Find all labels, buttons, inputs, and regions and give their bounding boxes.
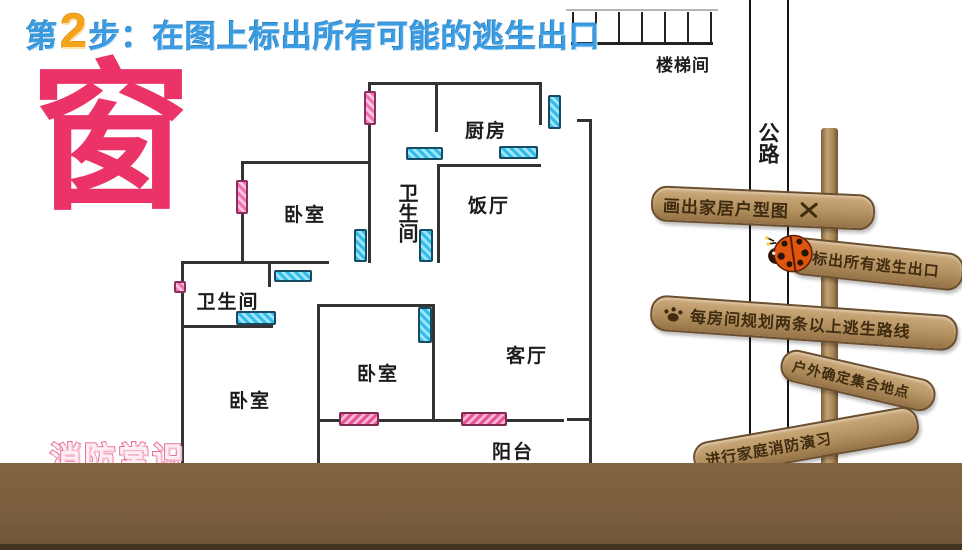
sign-step4-meeting-point: 户外确定集合地点 [777,347,938,415]
road-line-left [749,0,751,463]
sign-step1-draw-floorplan: 画出家居户型图 [650,185,875,231]
window-kitchen-mid [499,146,538,159]
sign-step3-label: 每房间规划两条以上逃生路线 [689,303,911,342]
signpost-pole [821,128,838,463]
window-bathroom-upper-left [354,229,367,262]
window-kitchen-right [548,95,561,129]
room-label-bedroom-middle: 卧室 [357,359,399,386]
window-kitchen-left [406,147,443,160]
room-label-stairwell: 楼梯间 [656,51,710,76]
completed-x-icon [799,200,820,221]
door-left-small [174,281,186,293]
sign-step2-label: 标出所有逃生出口 [811,247,941,281]
balcony-door-right [461,412,507,426]
balcony-door-left [339,412,379,426]
sign-step3-two-routes: 每房间规划两条以上逃生路线 [649,294,959,351]
window-bathroom-lower-top [274,270,312,282]
paw-icon [662,304,685,323]
sign-step4-label: 户外确定集合地点 [790,356,911,402]
room-label-bedroom-upper-left: 卧室 [284,200,326,227]
road-label: 公路 [757,122,778,164]
bottom-brown-band [0,463,962,550]
room-label-living-room: 客厅 [506,341,548,368]
window-big-character: 窗 [30,58,192,220]
room-label-bathroom-upper: 卫生间 [396,183,416,243]
room-label-kitchen: 厨房 [465,116,507,143]
room-label-bathroom-lower: 卫生间 [196,287,259,314]
window-bathroom-upper-right [419,229,433,262]
road-line-right [787,0,789,463]
window-bedroom-middle [418,307,432,343]
band-bottom-edge [0,544,962,550]
door-top [364,91,376,125]
room-label-balcony: 阳台 [492,437,534,464]
door-bedroom-left [236,180,248,214]
room-label-dining: 饭厅 [468,191,510,218]
sign-step1-label: 画出家居户型图 [663,191,790,221]
room-label-bedroom-lower-left: 卧室 [229,386,271,413]
ladybug-icon [763,230,816,278]
